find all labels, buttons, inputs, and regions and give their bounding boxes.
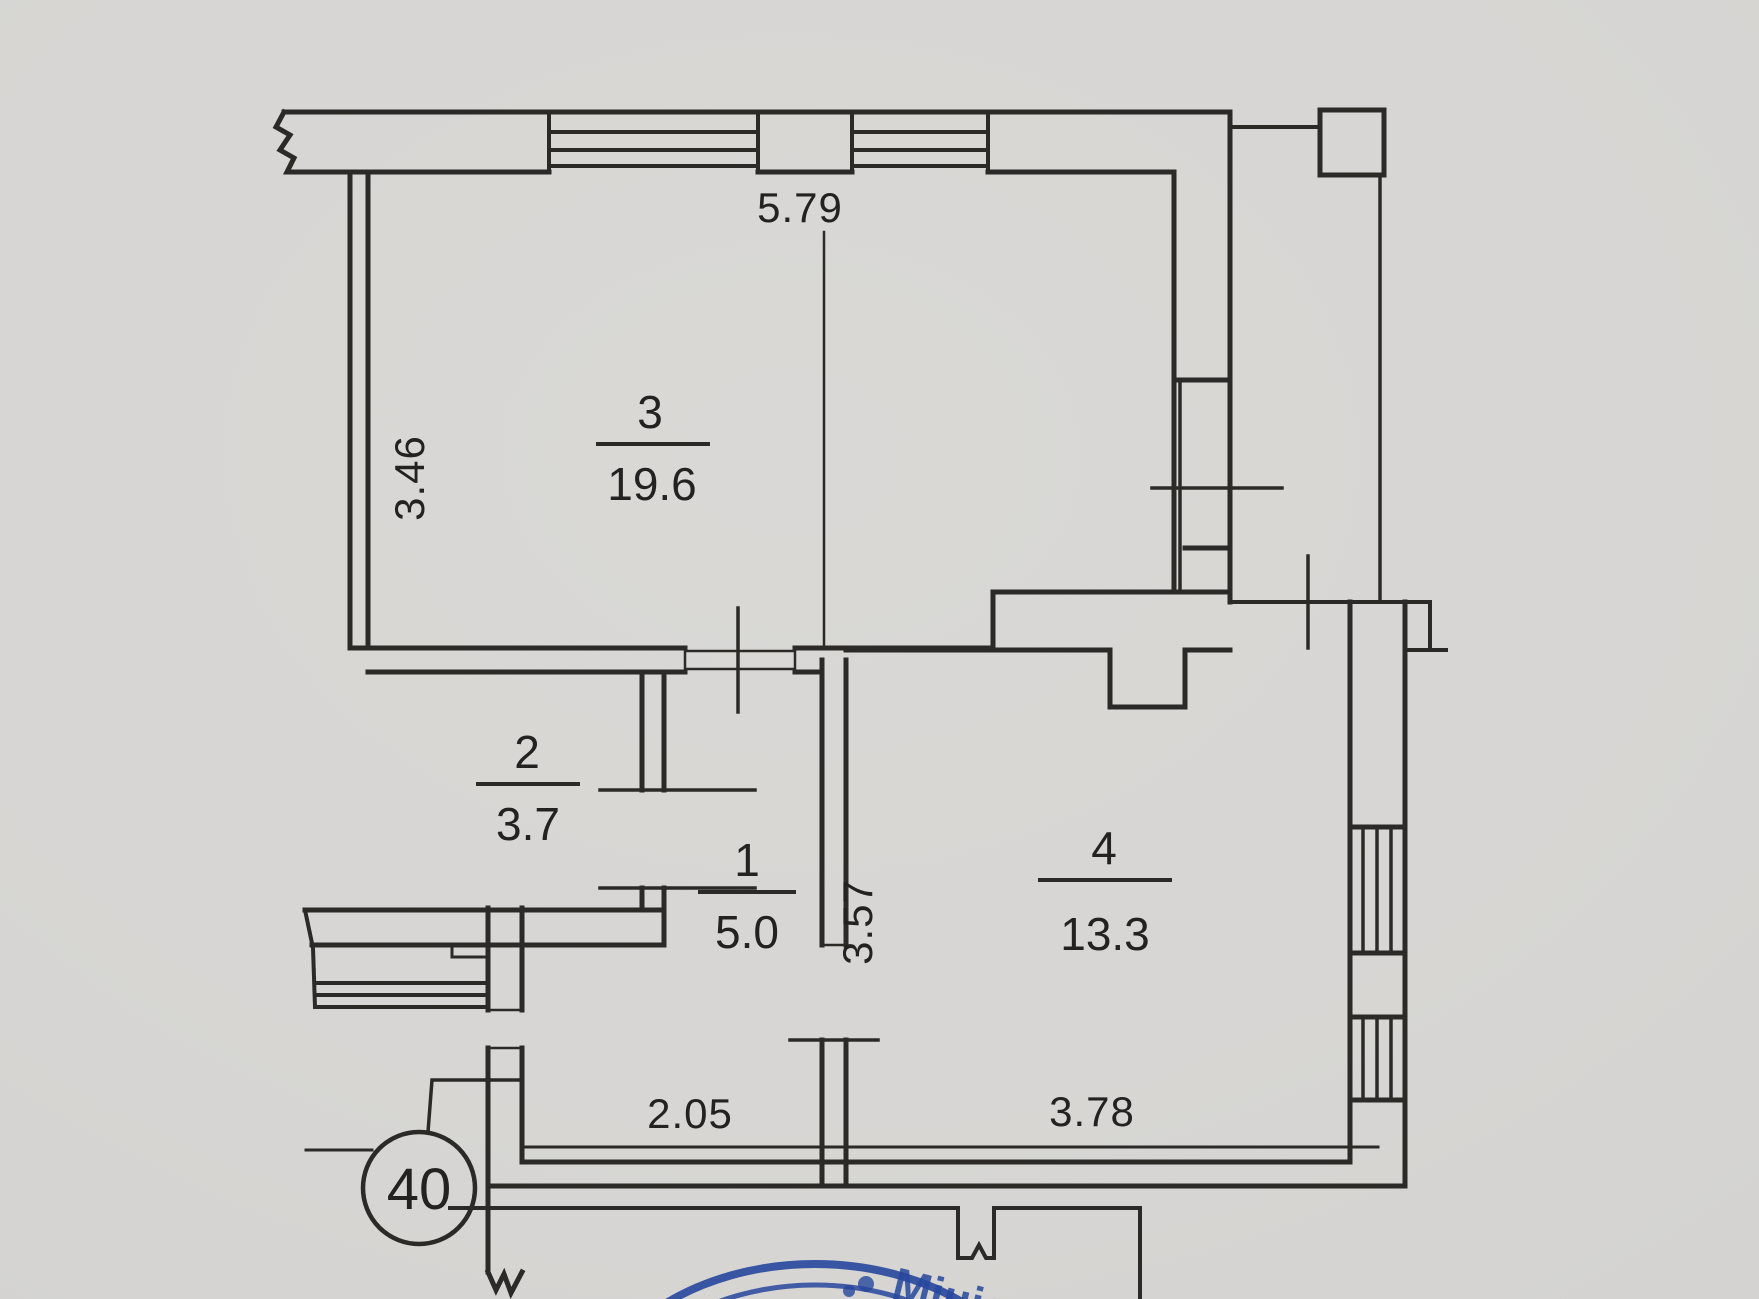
room-1-number: 1 xyxy=(734,834,760,886)
room-3-area: 19.6 xyxy=(607,458,697,510)
dimension-bottom-left: 2.05 xyxy=(647,1090,733,1137)
stamp-ornament-dot-1 xyxy=(843,1285,855,1297)
room-3-number: 3 xyxy=(637,386,663,438)
floor-plan-drawing: 40 3 19.6 2 3.7 1 5.0 4 13.3 5.79 3.46 3… xyxy=(0,0,1759,1299)
dimension-left: 3.46 xyxy=(386,435,433,521)
dimension-inner-vertical: 3.57 xyxy=(834,879,881,965)
room-4-number: 4 xyxy=(1091,822,1117,874)
dimension-bottom-right: 3.78 xyxy=(1049,1088,1135,1135)
scanned-floor-plan-page: 40 3 19.6 2 3.7 1 5.0 4 13.3 5.79 3.46 3… xyxy=(0,0,1759,1299)
room-1-area: 5.0 xyxy=(715,906,779,958)
room-2-area: 3.7 xyxy=(496,798,560,850)
stamp-ornament-dot-2 xyxy=(858,1276,874,1292)
room-4-area: 13.3 xyxy=(1060,908,1150,960)
dimension-top: 5.79 xyxy=(757,184,843,231)
apartment-number: 40 xyxy=(387,1157,452,1222)
room-2-number: 2 xyxy=(514,726,540,778)
